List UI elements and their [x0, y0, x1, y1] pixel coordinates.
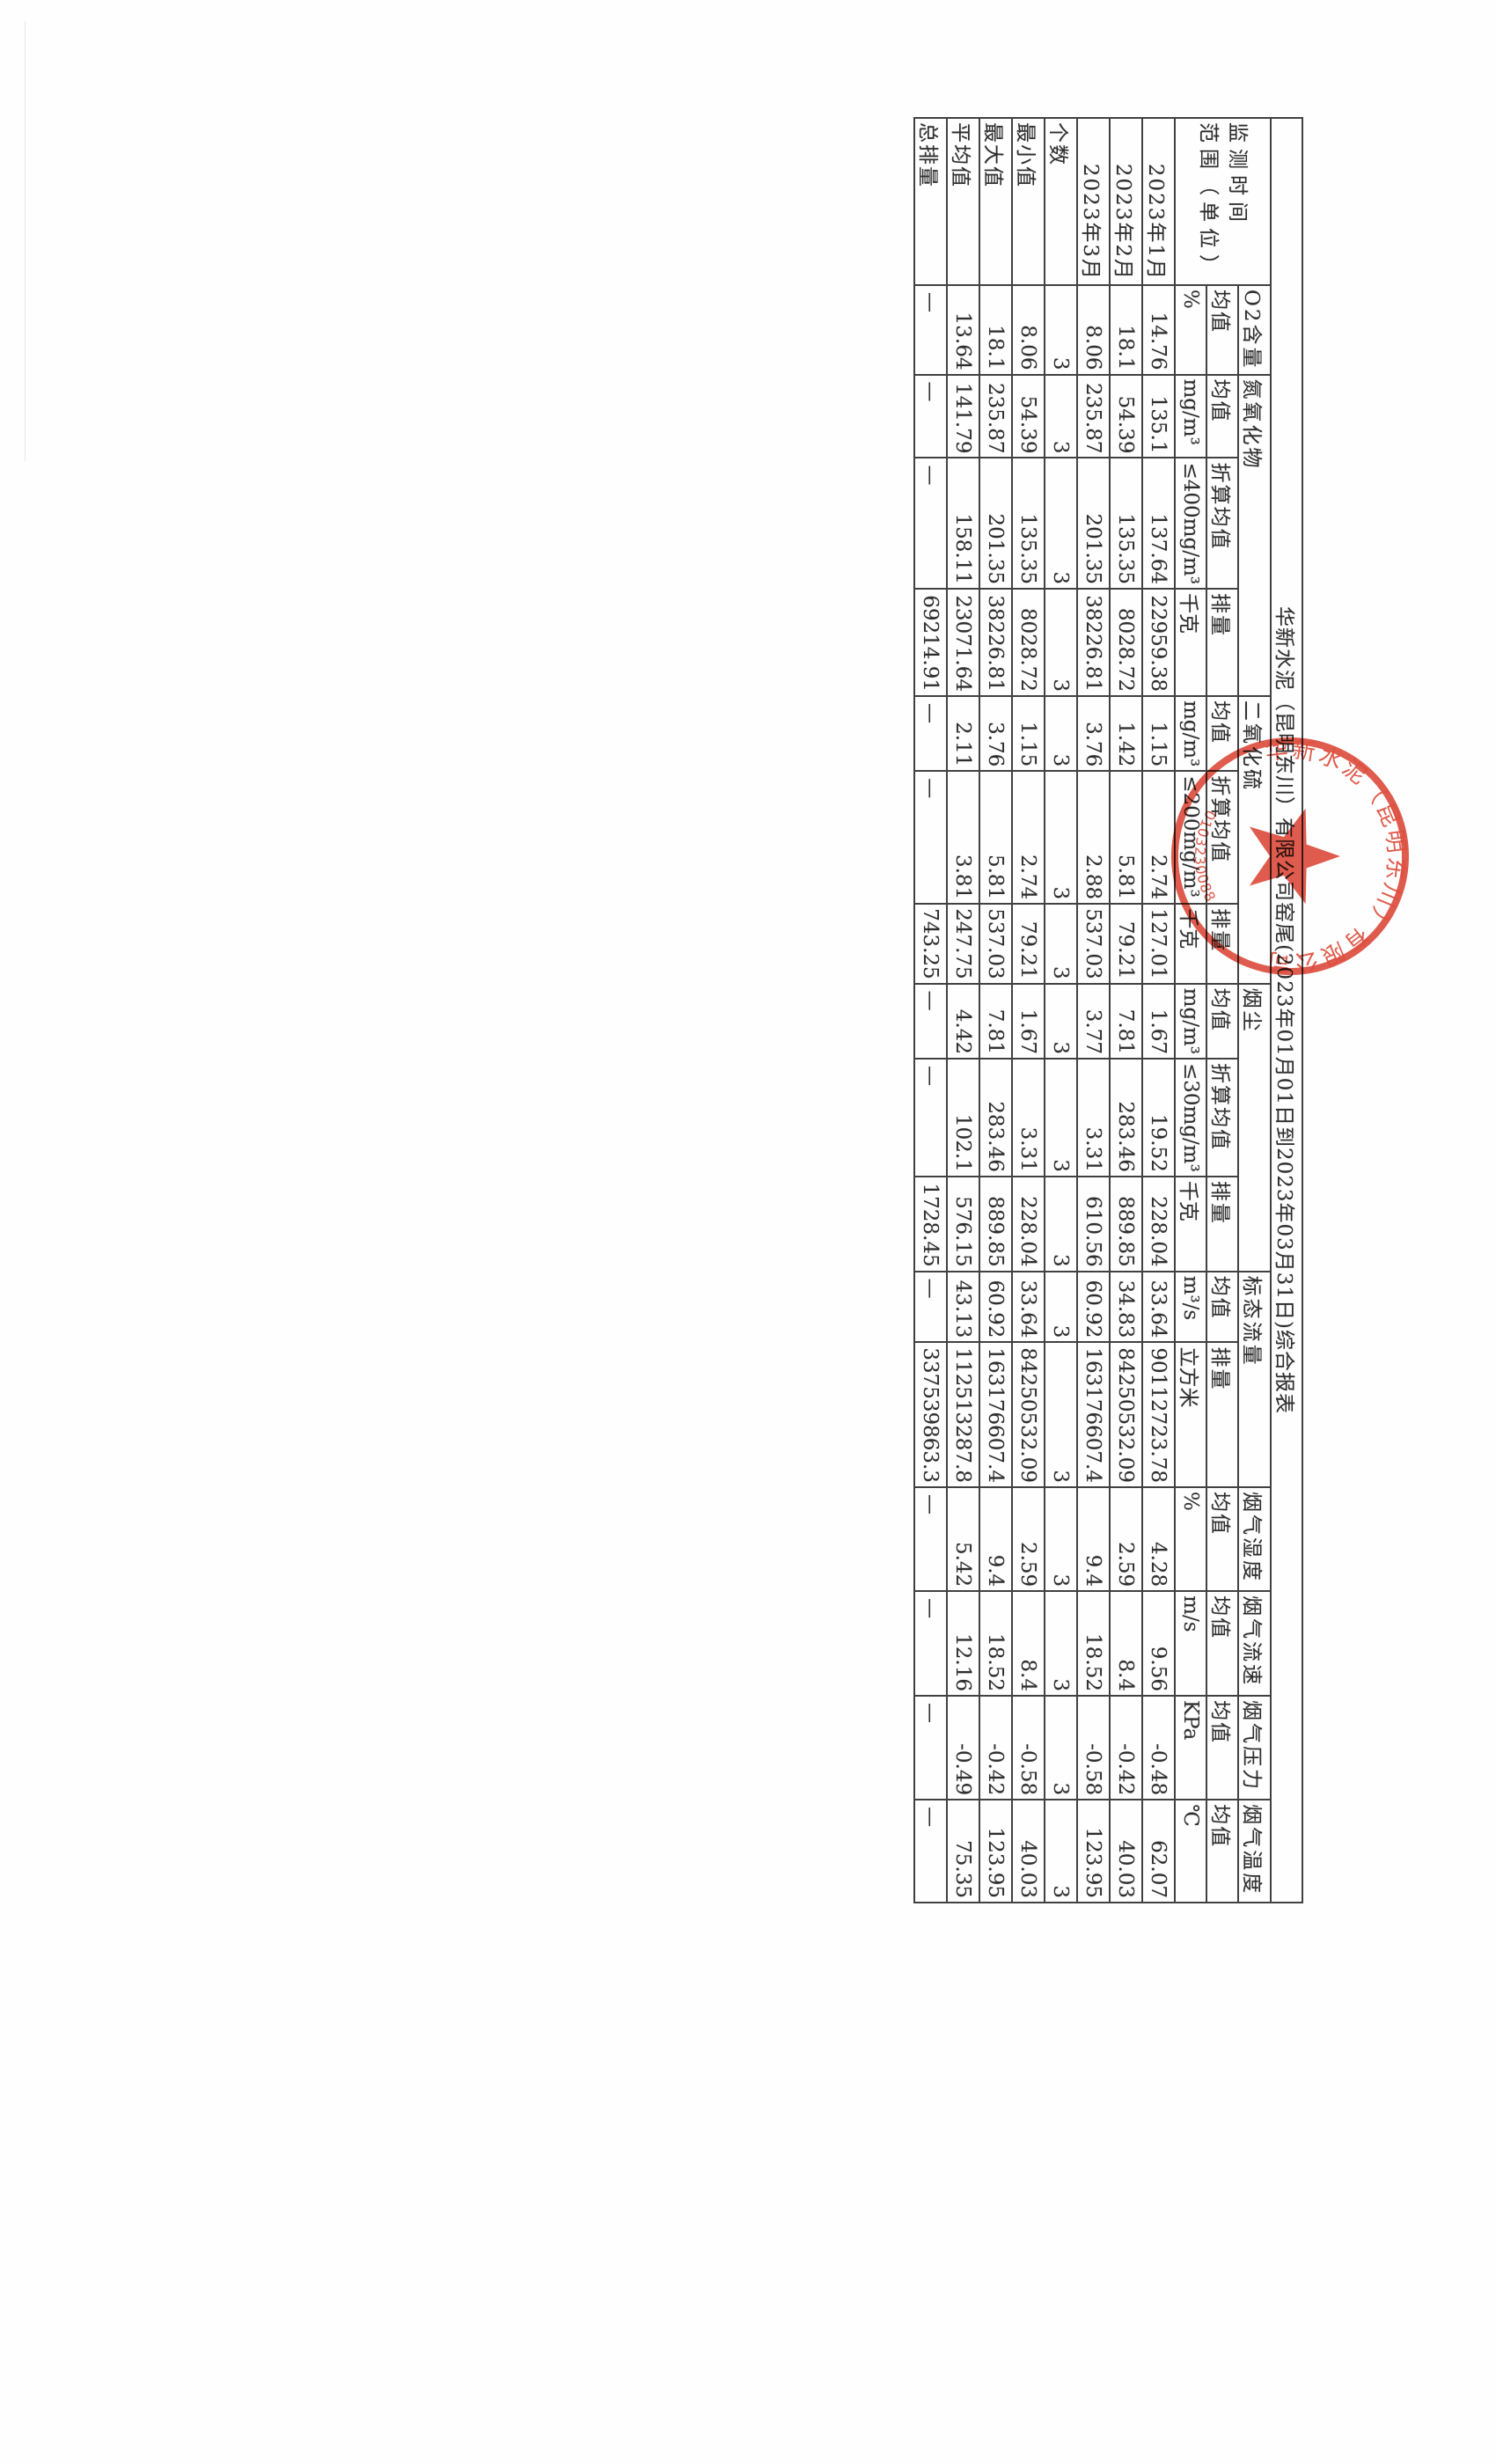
- table-row: 2023年3月8.06235.87201.3538226.813.762.885…: [1077, 118, 1110, 1903]
- stat-label-cell: 均值: [1206, 285, 1238, 375]
- data-cell: 1.15: [1012, 696, 1045, 771]
- unit-cell: ℃: [1175, 1800, 1206, 1903]
- data-cell: 135.35: [1012, 458, 1045, 588]
- data-cell: 9.4: [979, 1487, 1012, 1591]
- row-label-cell: 2023年1月: [1142, 118, 1175, 285]
- data-cell: —: [914, 1272, 947, 1343]
- data-cell: 889.85: [979, 1177, 1012, 1272]
- data-cell: 23071.64: [947, 589, 979, 696]
- data-cell: 201.35: [1077, 458, 1110, 588]
- table-row: 总排量———69214.91——743.25——1728.45—33753986…: [914, 118, 947, 1903]
- unit-cell: 千克: [1175, 1177, 1206, 1272]
- data-cell: 7.81: [979, 984, 1012, 1059]
- data-cell: 4.42: [947, 984, 979, 1059]
- data-cell: 1.67: [1012, 984, 1045, 1059]
- data-cell: 40.03: [1012, 1800, 1045, 1903]
- data-cell: -0.42: [1110, 1696, 1142, 1800]
- data-cell: 3: [1045, 984, 1077, 1059]
- row-label-cell: 个数: [1045, 118, 1077, 285]
- table-row: 最小值8.0654.39135.358028.721.152.7479.211.…: [1012, 118, 1045, 1903]
- data-cell: 228.04: [1142, 1177, 1175, 1272]
- data-cell: 8028.72: [1110, 589, 1142, 696]
- unit-cell: mg/m³: [1175, 696, 1206, 771]
- table-row: 2023年1月14.76135.1137.6422959.381.152.741…: [1142, 118, 1175, 1903]
- data-cell: 3: [1045, 1342, 1077, 1487]
- data-cell: 1.67: [1142, 984, 1175, 1059]
- data-cell: 3: [1045, 458, 1077, 588]
- row-label-cell: 2023年2月: [1110, 118, 1142, 285]
- data-cell: 3: [1045, 1059, 1077, 1177]
- data-cell: 38226.81: [979, 589, 1012, 696]
- corner-header-line1: 监测时间: [1223, 122, 1252, 281]
- data-cell: 163176607.4: [1077, 1342, 1110, 1487]
- data-cell: -0.42: [979, 1696, 1012, 1800]
- data-cell: —: [914, 1696, 947, 1800]
- unit-cell: KPa: [1175, 1696, 1206, 1800]
- stat-label-cell: 排量: [1206, 1177, 1238, 1272]
- data-cell: 2.74: [1142, 771, 1175, 904]
- data-cell: 34.83: [1110, 1272, 1142, 1343]
- stat-label-cell: 均值: [1206, 1272, 1238, 1343]
- data-cell: 3: [1045, 375, 1077, 458]
- data-cell: 54.39: [1012, 375, 1045, 458]
- unit-cell: mg/m³: [1175, 984, 1206, 1059]
- corner-header-cell: 监测时间范围（单位）: [1175, 118, 1271, 285]
- data-cell: 228.04: [1012, 1177, 1045, 1272]
- data-cell: 537.03: [1077, 904, 1110, 983]
- data-cell: 337539863.3: [914, 1342, 947, 1487]
- data-cell: 235.87: [979, 375, 1012, 458]
- data-cell: 610.56: [1077, 1177, 1110, 1272]
- data-cell: 9.56: [1142, 1591, 1175, 1696]
- data-cell: 1.42: [1110, 696, 1142, 771]
- data-cell: —: [914, 1800, 947, 1903]
- data-cell: 33.64: [1012, 1272, 1045, 1343]
- data-cell: 3: [1045, 285, 1077, 375]
- unit-cell: 立方米: [1175, 1342, 1206, 1487]
- data-cell: 5.81: [979, 771, 1012, 904]
- data-cell: 3.76: [1077, 696, 1110, 771]
- rotated-report-canvas: 华新水泥（昆明东川）有限公司窑尾(2023年01月01日到2023年03月31日…: [934, 117, 1303, 1903]
- stat-label-cell: 均值: [1206, 984, 1238, 1059]
- data-cell: 2.59: [1110, 1487, 1142, 1591]
- data-cell: 127.01: [1142, 904, 1175, 983]
- data-cell: 79.21: [1012, 904, 1045, 983]
- data-cell: -0.58: [1077, 1696, 1110, 1800]
- data-cell: 18.1: [979, 285, 1012, 375]
- report-title: 华新水泥（昆明东川）有限公司窑尾(2023年01月01日到2023年03月31日…: [1271, 118, 1302, 1903]
- data-cell: —: [914, 1591, 947, 1696]
- data-cell: -0.48: [1142, 1696, 1175, 1800]
- data-cell: 40.03: [1110, 1800, 1142, 1903]
- data-cell: 69214.91: [914, 589, 947, 696]
- data-cell: 283.46: [979, 1059, 1012, 1177]
- data-cell: 60.92: [979, 1272, 1012, 1343]
- data-cell: 22959.38: [1142, 589, 1175, 696]
- stat-label-cell: 均值: [1206, 1591, 1238, 1696]
- column-group-header: 二氧化硫: [1238, 696, 1271, 984]
- data-cell: 537.03: [979, 904, 1012, 983]
- unit-cell: %: [1175, 1487, 1206, 1591]
- column-group-header: 标态流量: [1238, 1272, 1271, 1487]
- table-row: 平均值13.64141.79158.1123071.642.113.81247.…: [947, 118, 979, 1903]
- data-cell: 2.88: [1077, 771, 1110, 904]
- data-cell: 2.59: [1012, 1487, 1045, 1591]
- data-cell: 79.21: [1110, 904, 1142, 983]
- scanned-report-page: 华新水泥（昆明东川）有限公司窑尾(2023年01月01日到2023年03月31日…: [0, 0, 1496, 2464]
- data-cell: 8.4: [1110, 1591, 1142, 1696]
- column-group-header: 烟气湿度: [1238, 1487, 1271, 1591]
- data-cell: —: [914, 771, 947, 904]
- data-cell: 9.4: [1077, 1487, 1110, 1591]
- unit-cell: ≤400mg/m³: [1175, 458, 1206, 588]
- table-row: 最大值18.1235.87201.3538226.813.765.81537.0…: [979, 118, 1012, 1903]
- data-cell: 3.31: [1077, 1059, 1110, 1177]
- data-cell: 3: [1045, 1272, 1077, 1343]
- data-cell: 75.35: [947, 1800, 979, 1903]
- data-cell: 3: [1045, 1696, 1077, 1800]
- data-cell: 158.11: [947, 458, 979, 588]
- data-cell: 123.95: [979, 1800, 1012, 1903]
- data-cell: 102.1: [947, 1059, 979, 1177]
- data-cell: 84250532.09: [1012, 1342, 1045, 1487]
- monitoring-report-table: 华新水泥（昆明东川）有限公司窑尾(2023年01月01日到2023年03月31日…: [913, 117, 1303, 1903]
- data-cell: 1.15: [1142, 696, 1175, 771]
- stat-label-cell: 均值: [1206, 1487, 1238, 1591]
- data-cell: —: [914, 1487, 947, 1591]
- corner-header-line2: 范围（单位）: [1194, 122, 1223, 281]
- data-cell: —: [914, 696, 947, 771]
- data-cell: -0.58: [1012, 1696, 1045, 1800]
- data-cell: 43.13: [947, 1272, 979, 1343]
- data-cell: 576.15: [947, 1177, 979, 1272]
- row-label-cell: 2023年3月: [1077, 118, 1110, 285]
- data-cell: 3: [1045, 1177, 1077, 1272]
- unit-cell: ≤200mg/m³: [1175, 771, 1206, 904]
- unit-cell: mg/m³: [1175, 375, 1206, 458]
- stat-label-cell: 均值: [1206, 1696, 1238, 1800]
- data-cell: 3: [1045, 589, 1077, 696]
- data-cell: 1728.45: [914, 1177, 947, 1272]
- data-cell: 7.81: [1110, 984, 1142, 1059]
- data-cell: 3.76: [979, 696, 1012, 771]
- data-cell: 235.87: [1077, 375, 1110, 458]
- data-cell: 141.79: [947, 375, 979, 458]
- column-group-header: 烟气流速: [1238, 1591, 1271, 1696]
- stat-label-cell: 均值: [1206, 696, 1238, 771]
- data-cell: 8028.72: [1012, 589, 1045, 696]
- stat-label-cell: 排量: [1206, 589, 1238, 696]
- unit-cell: 千克: [1175, 589, 1206, 696]
- data-cell: 8.06: [1077, 285, 1110, 375]
- data-cell: 54.39: [1110, 375, 1142, 458]
- data-cell: 8.4: [1012, 1591, 1045, 1696]
- data-cell: 3.77: [1077, 984, 1110, 1059]
- stat-label-cell: 均值: [1206, 375, 1238, 458]
- data-cell: 14.76: [1142, 285, 1175, 375]
- data-cell: 3.81: [947, 771, 979, 904]
- data-cell: -0.49: [947, 1696, 979, 1800]
- data-cell: 3: [1045, 1800, 1077, 1903]
- column-group-header: 氮氧化物: [1238, 375, 1271, 696]
- scan-artifact-line: [25, 21, 26, 461]
- data-cell: 247.75: [947, 904, 979, 983]
- data-cell: 84250532.09: [1110, 1342, 1142, 1487]
- data-cell: —: [914, 458, 947, 588]
- data-cell: 62.07: [1142, 1800, 1175, 1903]
- data-cell: 112513287.8: [947, 1342, 979, 1487]
- data-cell: 12.16: [947, 1591, 979, 1696]
- data-cell: 5.42: [947, 1487, 979, 1591]
- data-cell: 3.31: [1012, 1059, 1045, 1177]
- unit-cell: m³/s: [1175, 1272, 1206, 1343]
- data-cell: 3: [1045, 696, 1077, 771]
- data-cell: 135.1: [1142, 375, 1175, 458]
- unit-cell: %: [1175, 285, 1206, 375]
- stat-label-cell: 排量: [1206, 1342, 1238, 1487]
- data-cell: —: [914, 984, 947, 1059]
- data-cell: 135.35: [1110, 458, 1142, 588]
- data-cell: 18.52: [979, 1591, 1012, 1696]
- data-cell: 283.46: [1110, 1059, 1142, 1177]
- data-cell: 13.64: [947, 285, 979, 375]
- data-cell: 18.52: [1077, 1591, 1110, 1696]
- data-cell: 33.64: [1142, 1272, 1175, 1343]
- stat-label-cell: 折算均值: [1206, 771, 1238, 904]
- data-cell: 201.35: [979, 458, 1012, 588]
- data-cell: 18.1: [1110, 285, 1142, 375]
- data-cell: 2.11: [947, 696, 979, 771]
- stat-label-cell: 均值: [1206, 1800, 1238, 1903]
- unit-cell: 千克: [1175, 904, 1206, 983]
- data-cell: 3: [1045, 1487, 1077, 1591]
- data-cell: 3: [1045, 1591, 1077, 1696]
- column-group-header: 烟尘: [1238, 984, 1271, 1272]
- data-cell: 889.85: [1110, 1177, 1142, 1272]
- data-cell: 2.74: [1012, 771, 1045, 904]
- data-cell: —: [914, 375, 947, 458]
- column-group-header: O2含量: [1238, 285, 1271, 375]
- data-cell: 3: [1045, 771, 1077, 904]
- column-group-header: 烟气压力: [1238, 1696, 1271, 1800]
- data-cell: 90112723.78: [1142, 1342, 1175, 1487]
- data-cell: 743.25: [914, 904, 947, 983]
- data-cell: 4.28: [1142, 1487, 1175, 1591]
- data-cell: 3: [1045, 904, 1077, 983]
- stat-label-cell: 折算均值: [1206, 458, 1238, 588]
- row-label-cell: 最大值: [979, 118, 1012, 285]
- row-label-cell: 总排量: [914, 118, 947, 285]
- data-cell: 163176607.4: [979, 1342, 1012, 1487]
- unit-cell: m/s: [1175, 1591, 1206, 1696]
- column-group-header: 烟气温度: [1238, 1800, 1271, 1903]
- data-cell: 38226.81: [1077, 589, 1110, 696]
- data-cell: —: [914, 285, 947, 375]
- data-cell: 137.64: [1142, 458, 1175, 588]
- stat-label-cell: 排量: [1206, 904, 1238, 983]
- data-cell: —: [914, 1059, 947, 1177]
- unit-cell: ≤30mg/m³: [1175, 1059, 1206, 1177]
- table-row: 2023年2月18.154.39135.358028.721.425.8179.…: [1110, 118, 1142, 1903]
- data-cell: 60.92: [1077, 1272, 1110, 1343]
- row-label-cell: 最小值: [1012, 118, 1045, 285]
- data-cell: 8.06: [1012, 285, 1045, 375]
- table-row: 个数3333333333333333: [1045, 118, 1077, 1903]
- stat-label-cell: 折算均值: [1206, 1059, 1238, 1177]
- data-cell: 123.95: [1077, 1800, 1110, 1903]
- data-cell: 19.52: [1142, 1059, 1175, 1177]
- data-cell: 5.81: [1110, 771, 1142, 904]
- row-label-cell: 平均值: [947, 118, 979, 285]
